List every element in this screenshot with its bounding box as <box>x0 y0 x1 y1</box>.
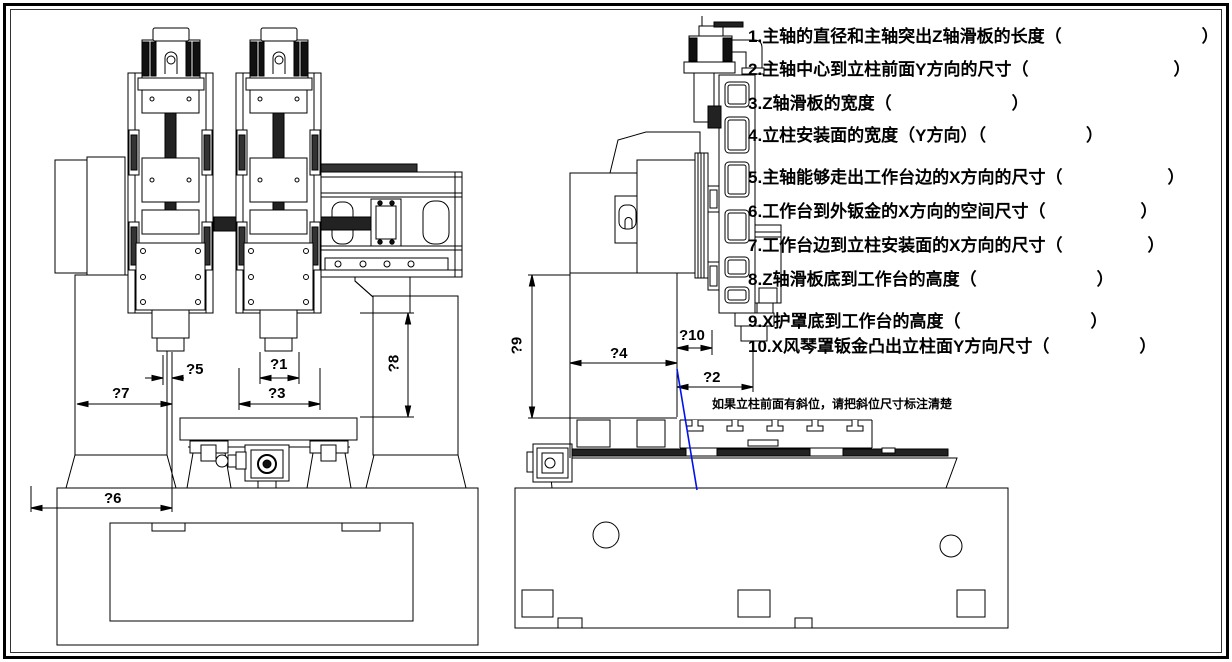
blank-close-paren: ） <box>1086 126 1103 145</box>
question-item-5: 5.主轴能够走出工作台边的X方向的尺寸（） <box>748 163 1185 188</box>
blank-open-paren: （ <box>1029 202 1046 221</box>
blank-close-paren: ） <box>1139 337 1156 356</box>
spindle-unit-left <box>128 73 213 351</box>
question-number: 1. <box>748 27 762 46</box>
dimension-label-8: ?8 <box>385 355 402 373</box>
side-column <box>528 273 677 458</box>
answer-blank <box>1063 249 1148 251</box>
question-item-6: 6.工作台到外钣金的X方向的空间尺寸（） <box>748 197 1158 222</box>
blank-close-paren: ） <box>1168 168 1185 187</box>
question-item-7: 7.工作台边到立柱安装面的X方向的尺寸（） <box>748 231 1165 256</box>
answer-blank <box>1062 40 1202 42</box>
question-item-4: 4.立柱安装面的宽度（Y方向）（） <box>748 121 1103 146</box>
question-number: 6. <box>748 202 762 221</box>
blank-close-paren: ） <box>1091 312 1108 331</box>
blank-open-paren: （ <box>978 126 987 145</box>
dimension-label-7: ?7 <box>112 385 130 402</box>
blank-close-paren: ） <box>1148 236 1165 255</box>
spindle-head-side <box>637 153 719 290</box>
answer-blank <box>1063 181 1168 183</box>
question-number: 5. <box>748 168 762 187</box>
dimension-label-9: ?9 <box>508 337 525 355</box>
question-text: 立柱安装面的宽度（Y方向） <box>762 126 977 145</box>
answer-blank <box>1049 350 1139 352</box>
blank-close-paren: ） <box>1012 94 1029 113</box>
question-item-2: 2.主轴中心到立柱前面Y方向的尺寸（） <box>748 55 1191 80</box>
blank-close-paren: ） <box>1141 202 1158 221</box>
dimension-label-5: ?5 <box>186 361 204 378</box>
answer-blank <box>1029 73 1174 75</box>
question-number: 4. <box>748 126 762 145</box>
question-text: 主轴能够走出工作台边的X方向的尺寸 <box>762 168 1045 187</box>
question-item-3: 3.Z轴滑板的宽度（） <box>748 89 1029 114</box>
answer-blank <box>892 107 1012 109</box>
blank-open-paren: （ <box>1032 337 1049 356</box>
question-text: X护罩底到工作台的高度 <box>762 312 943 331</box>
blank-close-paren: ） <box>1174 60 1191 79</box>
spindle-motor-right <box>246 28 312 90</box>
question-number: 3. <box>748 94 762 113</box>
dimension-label-1: ?1 <box>270 356 288 373</box>
blank-open-paren: （ <box>944 312 961 331</box>
question-text: X风琴罩钣金凸出立柱面Y方向尺寸 <box>772 337 1033 356</box>
question-item-9: 9.X护罩底到工作台的高度（） <box>748 307 1108 332</box>
spindle-motor-left <box>138 28 204 90</box>
answer-blank <box>1046 215 1141 217</box>
drawing-sheet: ?1 ?2 ?3 ?4 ?5 ?6 ?7 ?8 ?9 ?10 如果立柱前面有斜位… <box>0 0 1232 662</box>
blank-open-paren: （ <box>1012 60 1029 79</box>
blank-close-paren: ） <box>1097 270 1114 289</box>
question-number: 10. <box>748 337 772 356</box>
front-base <box>57 488 478 645</box>
dimension-label-3: ?3 <box>268 385 286 402</box>
front-view-drawing <box>31 28 478 645</box>
question-item-8: 8.Z轴滑板底到工作台的高度（） <box>748 265 1114 290</box>
question-text: 工作台到外钣金的X方向的空间尺寸 <box>762 202 1028 221</box>
answer-blank <box>961 325 1091 327</box>
dimension-label-6: ?6 <box>104 490 122 507</box>
answer-blank <box>977 283 1097 285</box>
dimension-label-4: ?4 <box>610 345 628 362</box>
front-table <box>180 418 357 488</box>
question-number: 7. <box>748 236 762 255</box>
blank-close-paren: ） <box>1202 27 1219 46</box>
side-base <box>515 488 1008 628</box>
question-number: 2. <box>748 60 762 79</box>
blank-open-paren: （ <box>960 270 977 289</box>
dimension-label-10: ?10 <box>679 327 705 344</box>
question-text: 主轴的直径和主轴突出Z轴滑板的长度 <box>762 27 1044 46</box>
spindle-unit-right <box>236 73 321 351</box>
question-text: Z轴滑板的宽度 <box>762 94 874 113</box>
blank-open-paren: （ <box>1045 27 1062 46</box>
question-number: 9. <box>748 312 762 331</box>
answer-blank <box>986 139 1086 141</box>
dimension-label-2: ?2 <box>703 369 721 386</box>
blank-open-paren: （ <box>1046 168 1063 187</box>
side-saddle <box>527 444 957 488</box>
question-item-1: 1.主轴的直径和主轴突出Z轴滑板的长度（） <box>748 22 1219 47</box>
question-item-10: 10.X风琴罩钣金凸出立柱面Y方向尺寸（） <box>748 332 1156 357</box>
x-axis-motor-front <box>55 157 125 275</box>
blank-open-paren: （ <box>1046 236 1063 255</box>
question-number: 8. <box>748 270 762 289</box>
question-text: 工作台边到立柱安装面的X方向的尺寸 <box>762 236 1045 255</box>
question-text: 主轴中心到立柱前面Y方向的尺寸 <box>762 60 1011 79</box>
question-text: Z轴滑板底到工作台的高度 <box>762 270 959 289</box>
slope-note: 如果立柱前面有斜位，请把斜位尺寸标注清楚 <box>712 395 952 412</box>
coupling-block <box>214 217 236 231</box>
blank-open-paren: （ <box>875 94 892 113</box>
